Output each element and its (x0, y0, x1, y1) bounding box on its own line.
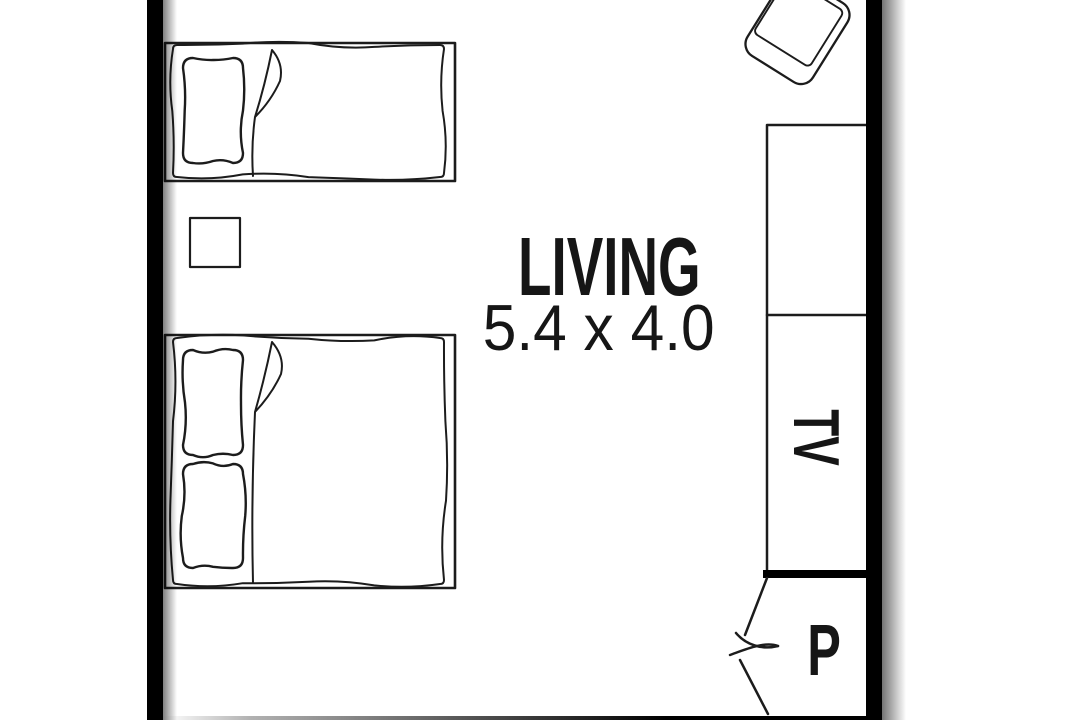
pantry-label-text: P (807, 615, 841, 687)
wall-left (147, 0, 163, 720)
bed-sheet (170, 335, 447, 587)
single-bed (165, 42, 455, 181)
double-bed (165, 335, 455, 588)
tv-label-text: TV (785, 409, 850, 465)
blanket-fold (252, 342, 282, 583)
tv-unit-base-wall (763, 570, 868, 578)
door-lower-leaf (740, 660, 768, 714)
pillow (183, 58, 244, 163)
wall-bottom (163, 716, 882, 720)
cabinet-outline (767, 125, 866, 315)
wall-cabinet (767, 125, 866, 315)
door-upper-leaf (745, 578, 767, 635)
blanket-fold (252, 50, 281, 176)
pantry-door (730, 578, 778, 714)
armchair-body (740, 0, 855, 89)
bedside-table (190, 218, 240, 267)
floorplan: LIVING 5.4 x 4.0 TV P (0, 0, 1067, 720)
room-dimensions-text: 5.4 x 4.0 (483, 295, 715, 360)
armchair-seat (753, 0, 844, 67)
pillow (183, 349, 243, 457)
bed-sheet (170, 42, 445, 180)
bed-frame (165, 43, 455, 181)
pillow (181, 462, 246, 568)
armchair (740, 0, 855, 89)
wall-right (866, 0, 882, 720)
